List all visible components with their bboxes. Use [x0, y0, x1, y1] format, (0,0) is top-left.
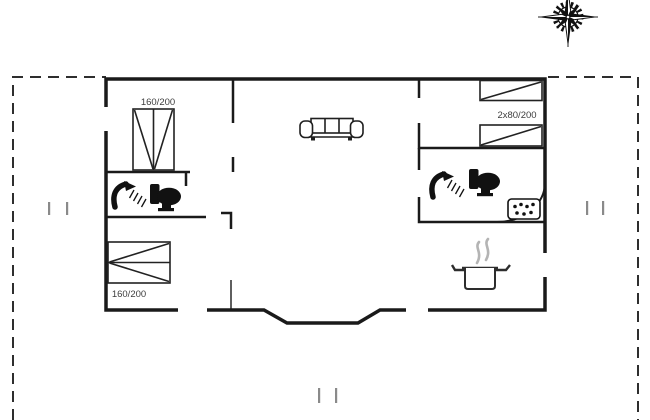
cooking-pot-icon	[452, 239, 510, 289]
stove-hob-icon	[508, 199, 540, 219]
interior-wall-hall-corner	[221, 213, 231, 229]
tick-mark-bottom-2	[335, 388, 337, 403]
steam-icon	[477, 239, 488, 263]
double-bed-bottom-left	[108, 242, 170, 283]
exterior-wall-bay-window	[207, 310, 406, 323]
compass-rose-icon	[538, 0, 598, 47]
pot-body	[465, 268, 495, 289]
shower-icon	[114, 181, 146, 207]
bed-size-label-bottom-left: 160/200	[112, 289, 146, 300]
bed-size-label-top-right: 2x80/200	[497, 110, 536, 121]
floorplan-canvas: 160/200 2x80/200 160/200	[0, 0, 650, 420]
floorplan-drawing: 160/200 2x80/200 160/200	[0, 0, 650, 420]
tick-mark-bottom-1	[318, 388, 320, 403]
pot-handle-right	[496, 265, 510, 270]
toilet-icon	[150, 184, 181, 211]
plot-boundary-dashed-right	[548, 77, 638, 420]
boundary-tick-marks	[48, 201, 604, 403]
sofa-icon	[300, 119, 363, 141]
double-bed-top-left	[133, 109, 174, 170]
bed-size-label-top-left: 160/200	[141, 97, 175, 108]
tick-mark-left-2	[66, 202, 68, 215]
tick-mark-right-1	[586, 201, 588, 215]
tick-mark-left-1	[48, 202, 50, 215]
plot-boundary-dashed-left	[13, 77, 106, 420]
tick-mark-right-2	[602, 201, 604, 215]
toilet-icon	[469, 169, 500, 196]
shower-icon	[432, 171, 464, 197]
